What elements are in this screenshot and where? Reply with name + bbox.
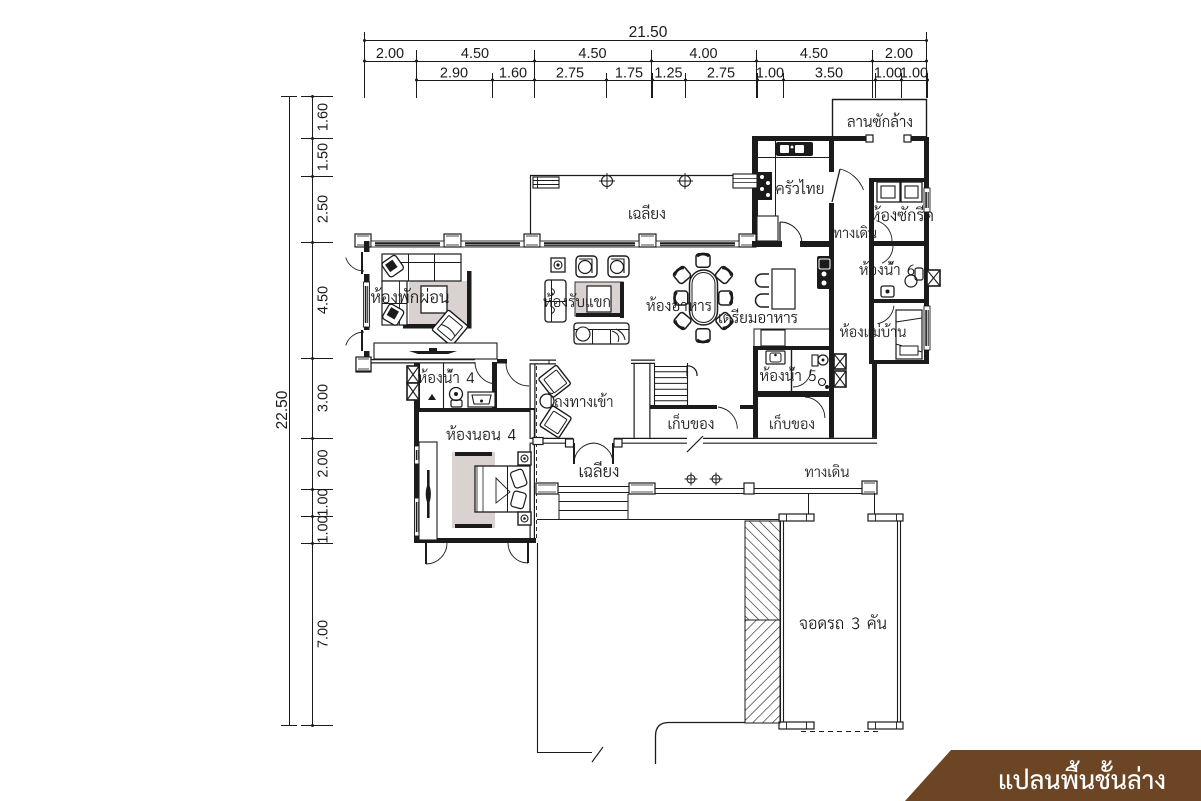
svg-text:1.00: 1.00	[316, 488, 332, 516]
svg-text:3.00: 3.00	[316, 384, 332, 412]
svg-text:1.60: 1.60	[499, 66, 527, 82]
svg-text:2.75: 2.75	[707, 66, 735, 82]
svg-text:4.50: 4.50	[316, 286, 332, 314]
svg-text:1.00: 1.00	[316, 515, 332, 543]
svg-text:1.50: 1.50	[316, 143, 332, 171]
svg-text:4.50: 4.50	[461, 46, 489, 62]
svg-text:2.50: 2.50	[316, 195, 332, 223]
svg-text:1.00: 1.00	[756, 66, 784, 82]
svg-text:1.60: 1.60	[316, 103, 332, 131]
svg-text:1.00: 1.00	[900, 66, 928, 82]
svg-text:1.75: 1.75	[615, 66, 643, 82]
svg-text:2.75: 2.75	[556, 66, 584, 82]
svg-text:2.00: 2.00	[376, 46, 404, 62]
svg-text:3.50: 3.50	[815, 66, 843, 82]
svg-text:2.00: 2.00	[885, 46, 913, 62]
svg-text:2.90: 2.90	[440, 66, 468, 82]
svg-text:4.00: 4.00	[689, 46, 717, 62]
svg-text:4.50: 4.50	[800, 46, 828, 62]
svg-text:21.50: 21.50	[629, 24, 668, 41]
svg-text:7.00: 7.00	[316, 620, 332, 648]
svg-text:1.00: 1.00	[874, 66, 902, 82]
svg-text:2.00: 2.00	[316, 449, 332, 477]
svg-text:22.50: 22.50	[274, 390, 291, 429]
svg-text:1.25: 1.25	[654, 66, 682, 82]
svg-text:4.50: 4.50	[578, 46, 606, 62]
